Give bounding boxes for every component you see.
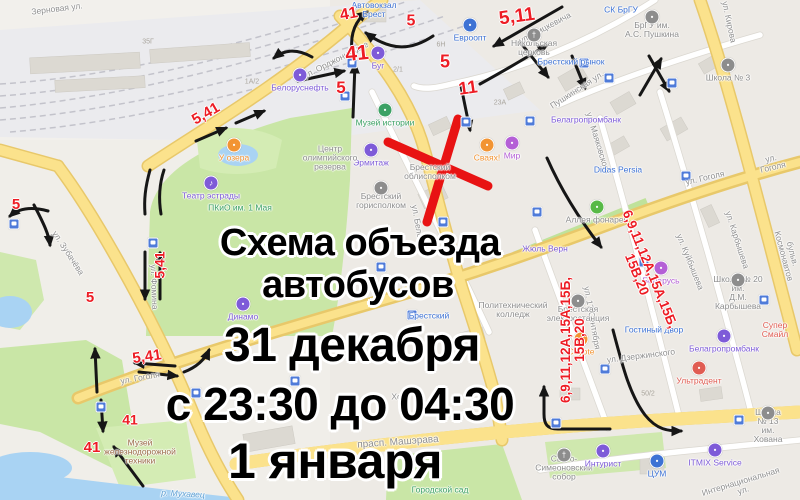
poi-icon: • xyxy=(650,454,665,469)
poi-icon: • xyxy=(596,444,611,459)
poi-icon: † xyxy=(557,448,572,463)
poi-icon: • xyxy=(654,261,669,276)
poi-icon: • xyxy=(371,46,386,61)
bus-stop-icon xyxy=(759,295,770,306)
bus-stop-icon xyxy=(734,415,745,426)
bus-stop-icon xyxy=(347,58,358,69)
overlay-title-line: Схема объезда xyxy=(220,222,500,265)
poi-icon: • xyxy=(721,58,736,73)
bus-stop-icon xyxy=(9,219,20,230)
poi-icon: • xyxy=(590,200,605,215)
overlay-title-line: 1 января xyxy=(228,432,442,490)
bus-stop-icon xyxy=(532,207,543,218)
overlay-title-line: 31 декабря xyxy=(224,318,480,373)
poi-icon: • xyxy=(645,10,660,25)
poi-icon: • xyxy=(571,294,586,309)
poi-icon: • xyxy=(717,329,732,344)
poi-icon: • xyxy=(378,103,393,118)
bus-stop-icon xyxy=(579,58,590,69)
poi-icon: † xyxy=(527,28,542,43)
poi-icon: • xyxy=(708,443,723,458)
poi-icon: • xyxy=(374,181,389,196)
poi-icon: ♪ xyxy=(204,176,219,191)
overlay-title-line: автобусов xyxy=(262,264,454,307)
poi-icon: • xyxy=(731,273,746,288)
bus-stop-icon xyxy=(551,418,562,429)
map-poster: Зерновая ул.ул. Орджоникидзеул. Мицкевич… xyxy=(0,0,800,500)
bus-stop-icon xyxy=(639,257,650,268)
bus-stop-icon xyxy=(148,238,159,249)
bus-stop-icon xyxy=(604,73,615,84)
poi-icon: • xyxy=(463,18,478,33)
overlay-title-line: с 23:30 до 04:30 xyxy=(166,377,515,431)
poi-icon: • xyxy=(761,406,776,421)
poi-icon: • xyxy=(293,68,308,83)
bus-stop-icon xyxy=(681,171,692,182)
poi-icon: • xyxy=(692,361,707,376)
bus-stop-icon xyxy=(96,402,107,413)
bus-stop-icon xyxy=(525,116,536,127)
poi-icon: • xyxy=(364,143,379,158)
poi-icon: • xyxy=(574,332,589,347)
bus-stop-icon xyxy=(461,117,472,128)
poi-icon: • xyxy=(480,138,495,153)
poi-icon: • xyxy=(236,297,251,312)
poi-icon: • xyxy=(505,136,520,151)
bus-stop-icon xyxy=(667,78,678,89)
poi-icon: • xyxy=(227,138,242,153)
bus-stop-icon xyxy=(340,91,351,102)
bus-stop-icon xyxy=(600,364,611,375)
